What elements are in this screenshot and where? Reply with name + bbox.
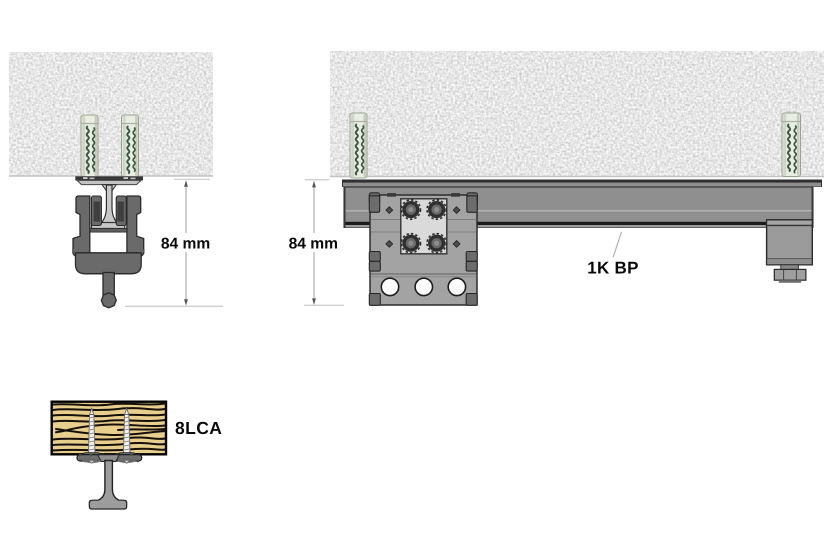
- svg-text:1K BP: 1K BP: [587, 259, 639, 278]
- svg-text:84 mm: 84 mm: [289, 236, 338, 253]
- svg-text:84 mm: 84 mm: [161, 236, 210, 253]
- svg-text:8LCA: 8LCA: [175, 418, 222, 438]
